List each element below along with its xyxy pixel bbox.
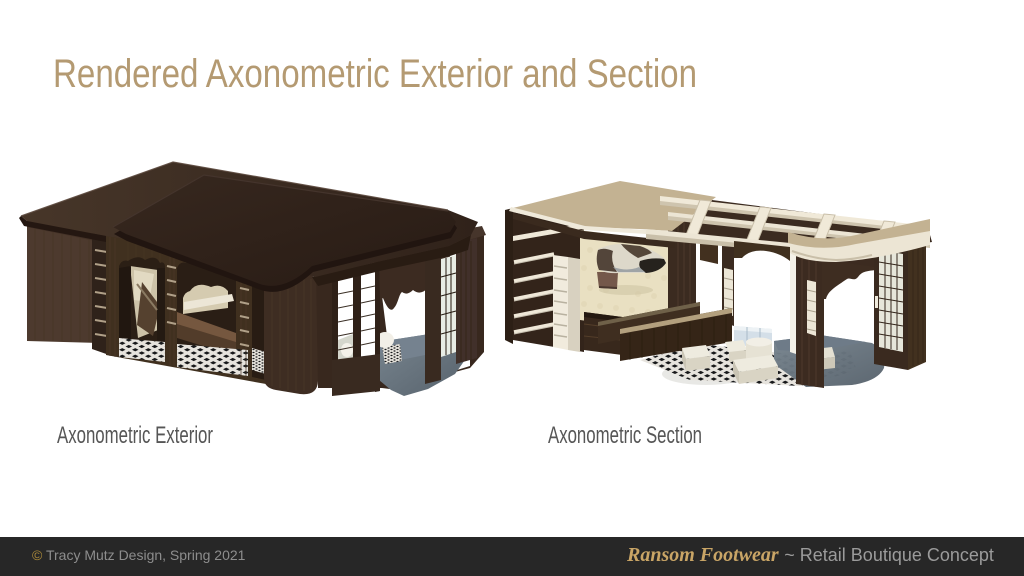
- svg-text:Axonometric Exterior: Axonometric Exterior: [57, 422, 213, 449]
- svg-text:Axonometric Section: Axonometric Section: [548, 422, 702, 449]
